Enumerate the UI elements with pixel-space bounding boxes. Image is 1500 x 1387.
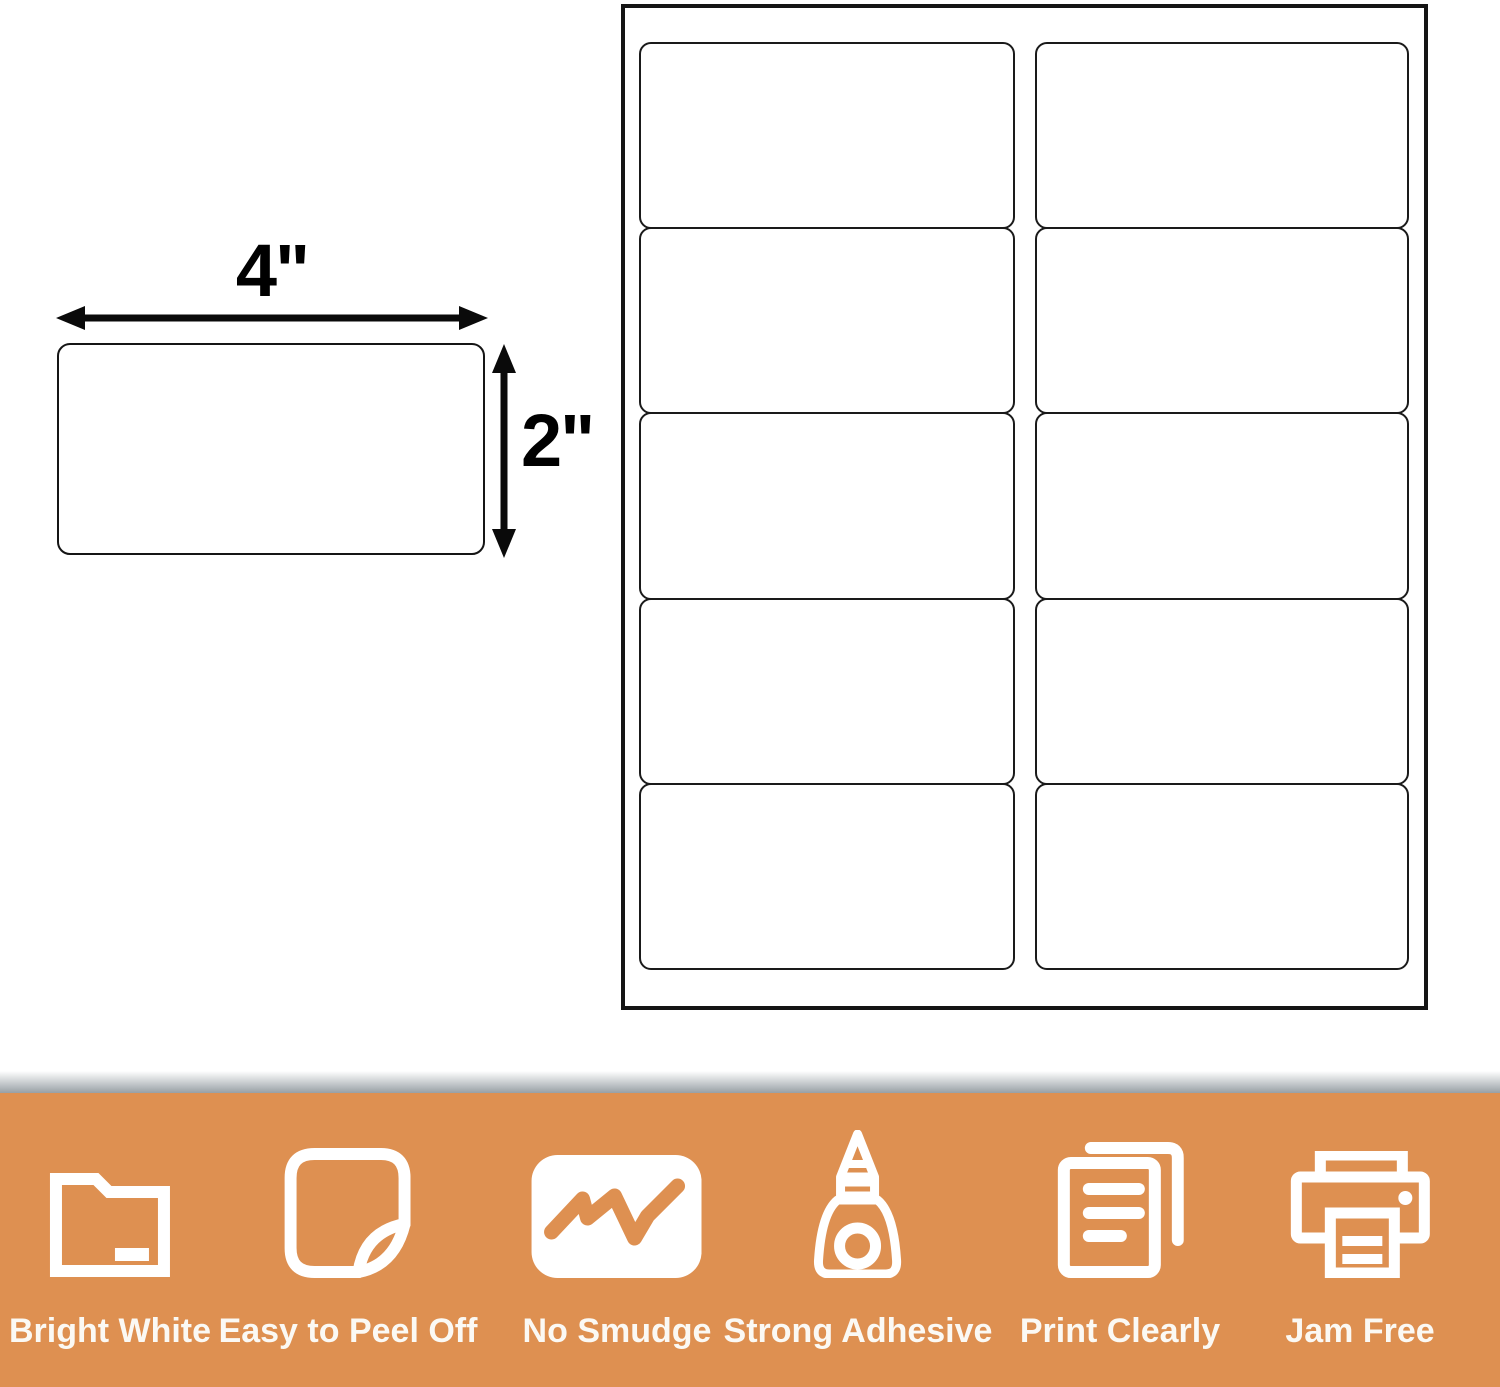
printer-icon <box>1290 1128 1430 1278</box>
feature-bright-white: Bright White <box>9 1128 211 1348</box>
folder-icon <box>49 1128 171 1278</box>
vertical-dimension-arrow-icon <box>489 344 519 558</box>
sheet-label-cell <box>639 42 1015 229</box>
documents-icon <box>1057 1128 1184 1278</box>
label-sheet <box>621 4 1428 1010</box>
feature-jam-free: Jam Free <box>1285 1128 1434 1348</box>
feature-strong-adhesive: Strong Adhesive <box>724 1128 993 1348</box>
peel-sticker-icon <box>285 1128 411 1278</box>
feature-label: No Smudge <box>523 1314 712 1348</box>
sheet-label-cell <box>1035 783 1409 970</box>
feature-easy-peel: Easy to Peel Off <box>219 1128 478 1348</box>
sheet-label-cell <box>639 412 1015 599</box>
feature-print-clearly: Print Clearly <box>1020 1128 1220 1348</box>
label-sheet-column <box>639 42 1015 970</box>
sheet-label-cell <box>639 783 1015 970</box>
sheet-label-cell <box>639 227 1015 414</box>
sheet-label-cell <box>639 598 1015 785</box>
feature-banner: Bright White Easy to Peel Off No Smudge <box>0 1093 1500 1387</box>
feature-no-smudge: No Smudge <box>523 1128 712 1348</box>
gradient-divider <box>0 1071 1500 1093</box>
sheet-label-cell <box>1035 42 1409 229</box>
single-label-outline <box>57 343 485 555</box>
feature-label: Print Clearly <box>1020 1314 1220 1348</box>
feature-label: Jam Free <box>1285 1314 1434 1348</box>
sheet-label-cell <box>1035 598 1409 785</box>
feature-label: Bright White <box>9 1314 211 1348</box>
sheet-label-cell <box>1035 412 1409 599</box>
product-infographic: 4" 2" Bright White <box>0 0 1500 1387</box>
label-sheet-column <box>1035 42 1409 970</box>
no-smudge-icon <box>532 1128 702 1278</box>
sheet-label-cell <box>1035 227 1409 414</box>
width-dimension-label: 4" <box>56 234 488 308</box>
glue-bottle-icon <box>808 1128 908 1278</box>
feature-label: Strong Adhesive <box>724 1314 993 1348</box>
horizontal-dimension-arrow-icon <box>56 303 488 333</box>
height-dimension-label: 2" <box>521 404 593 478</box>
feature-label: Easy to Peel Off <box>219 1314 478 1348</box>
